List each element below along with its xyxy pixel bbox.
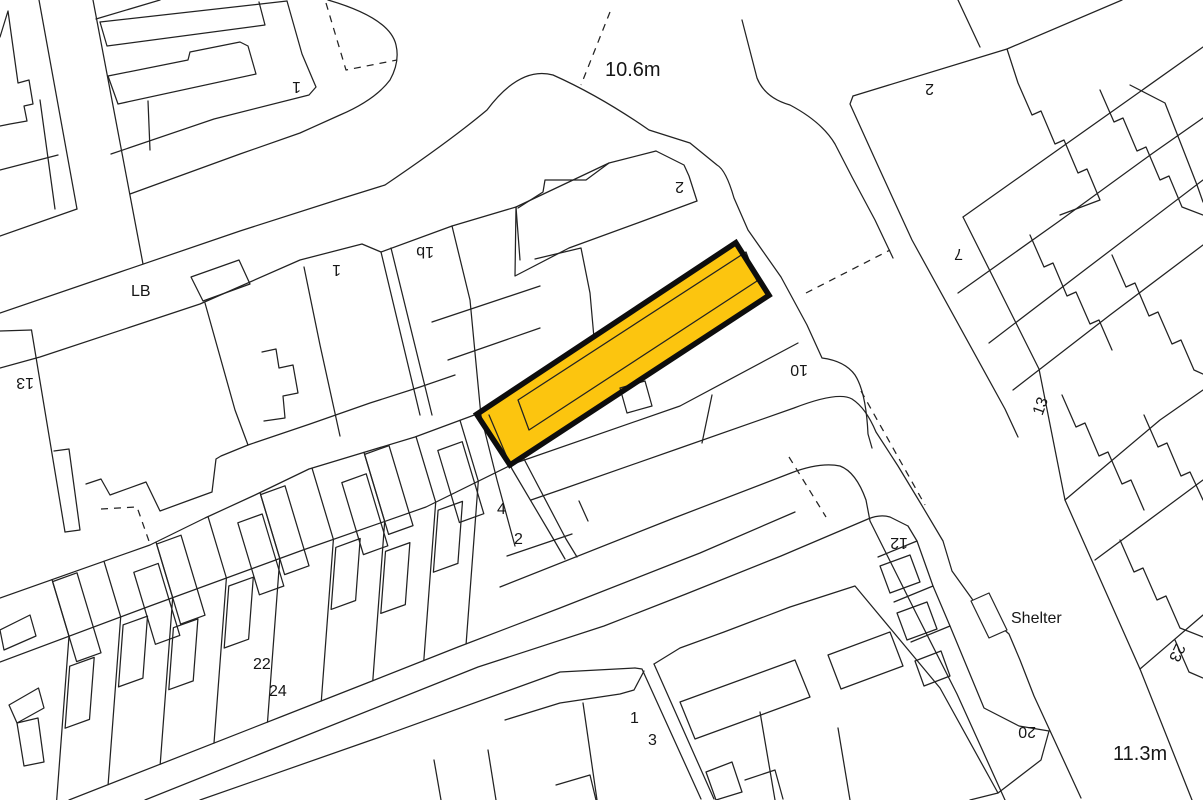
- svg-text:20: 20: [1018, 723, 1036, 740]
- svg-text:1: 1: [630, 710, 639, 727]
- svg-text:3: 3: [648, 732, 657, 749]
- svg-text:2: 2: [675, 178, 684, 195]
- svg-text:11.3m: 11.3m: [1113, 743, 1167, 765]
- svg-text:Shelter: Shelter: [1011, 610, 1062, 627]
- svg-text:13: 13: [16, 374, 34, 391]
- svg-text:12: 12: [890, 534, 908, 551]
- svg-text:4: 4: [497, 501, 506, 518]
- svg-text:7: 7: [954, 245, 963, 262]
- svg-text:2: 2: [514, 531, 523, 548]
- svg-text:10.6m: 10.6m: [605, 59, 661, 81]
- svg-text:1: 1: [332, 261, 341, 278]
- svg-text:24: 24: [269, 683, 287, 700]
- svg-text:1b: 1b: [416, 243, 434, 260]
- svg-text:LB: LB: [131, 283, 151, 300]
- svg-text:1: 1: [292, 78, 301, 95]
- svg-text:22: 22: [253, 656, 271, 673]
- svg-text:2: 2: [925, 80, 934, 97]
- svg-text:10: 10: [790, 361, 808, 378]
